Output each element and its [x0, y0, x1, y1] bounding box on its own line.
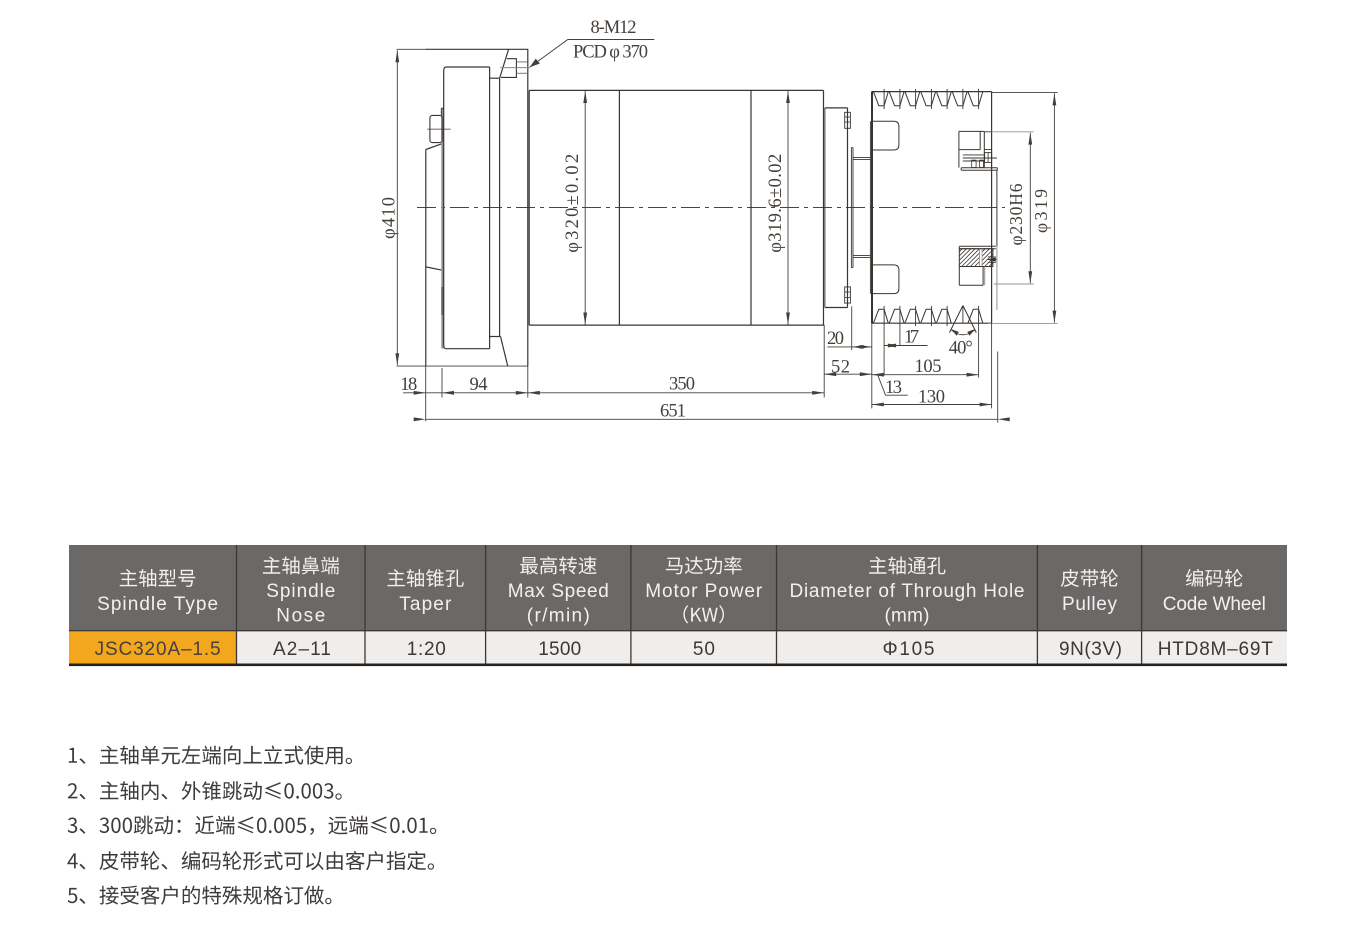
svg-text:13: 13 [885, 378, 902, 398]
svg-text:A2–11: A2–11 [273, 639, 331, 660]
svg-text:50: 50 [693, 639, 715, 660]
svg-text:20: 20 [827, 329, 844, 349]
svg-text:Nose: Nose [276, 606, 325, 627]
svg-text:94: 94 [470, 375, 488, 395]
svg-text:PCD φ 370: PCD φ 370 [573, 42, 648, 62]
svg-text:1:20: 1:20 [407, 639, 446, 660]
svg-text:40°: 40° [949, 339, 973, 359]
svg-text:Taper: Taper [399, 594, 452, 615]
svg-text:(r/min): (r/min) [527, 606, 590, 627]
svg-text:φ320±0.02: φ320±0.02 [563, 154, 583, 253]
svg-text:350: 350 [669, 374, 695, 394]
svg-text:Max Speed: Max Speed [508, 581, 609, 602]
svg-text:Spindle Type: Spindle Type [97, 594, 218, 615]
svg-text:8-M12: 8-M12 [591, 18, 637, 38]
svg-text:17: 17 [904, 328, 919, 348]
svg-text:651: 651 [660, 402, 686, 422]
svg-text:52: 52 [831, 358, 850, 378]
svg-text:105: 105 [915, 357, 942, 377]
svg-text:Diameter of Through Hole: Diameter of Through Hole [790, 581, 1025, 602]
svg-text:9N(3V): 9N(3V) [1059, 639, 1122, 660]
svg-text:1500: 1500 [538, 639, 581, 660]
svg-text:JSC320A–1.5: JSC320A–1.5 [95, 639, 221, 660]
svg-text:130: 130 [918, 387, 945, 407]
svg-text:Φ105: Φ105 [883, 639, 935, 660]
svg-text:φ410: φ410 [380, 197, 400, 239]
svg-text:18: 18 [400, 375, 417, 395]
svg-text:Code Wheel: Code Wheel [1163, 594, 1266, 615]
svg-text:φ319: φ319 [1031, 189, 1051, 233]
svg-text:φ319.6±0.02: φ319.6±0.02 [766, 154, 786, 253]
svg-text:Spindle: Spindle [266, 581, 335, 602]
svg-text:(mm): (mm) [885, 606, 930, 627]
svg-text:Pulley: Pulley [1062, 594, 1118, 615]
svg-text:φ230H6: φ230H6 [1006, 183, 1026, 245]
svg-text:Motor Power: Motor Power [645, 581, 763, 602]
svg-text:HTD8M–69T: HTD8M–69T [1158, 639, 1273, 660]
